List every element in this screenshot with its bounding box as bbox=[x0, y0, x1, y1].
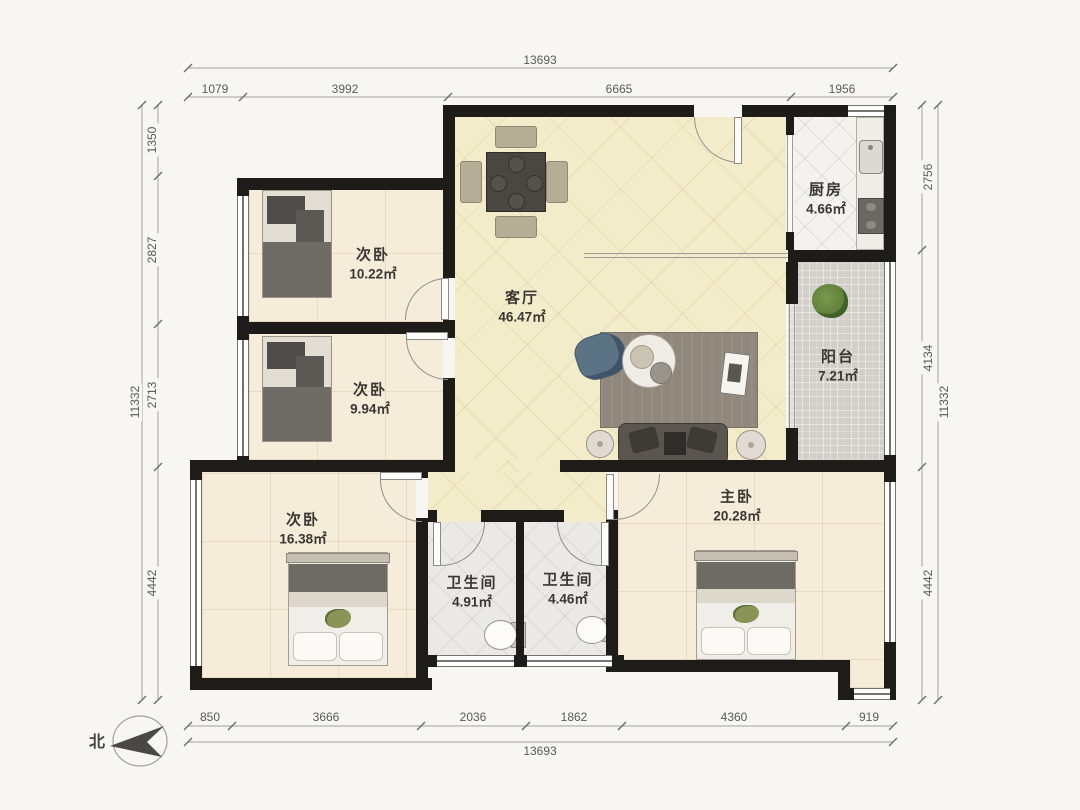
dim-top-seg-0: 1079 bbox=[199, 82, 232, 96]
wall-nook-step bbox=[838, 660, 850, 700]
bedroom2-name: 次卧 bbox=[350, 380, 390, 400]
label-living: 客厅 46.47㎡ bbox=[498, 288, 545, 325]
kitchen-area: 4.66㎡ bbox=[806, 200, 846, 218]
side-table bbox=[736, 430, 766, 460]
dim-right-seg-2: 4442 bbox=[921, 567, 935, 600]
wall-kitchen-living-nub-bottom bbox=[786, 232, 794, 250]
wall-balcony-living-block-top bbox=[786, 262, 798, 304]
entrance-door-leaf bbox=[734, 117, 742, 164]
window-bedroom1 bbox=[237, 196, 249, 316]
wall-living-left-a bbox=[443, 105, 455, 278]
wall-bathrooms-top-a bbox=[428, 510, 437, 522]
wall-living-left-c bbox=[443, 378, 455, 472]
dining-chair bbox=[495, 216, 537, 238]
kitchen-name: 厨房 bbox=[806, 180, 846, 200]
dim-left-seg-0: 1350 bbox=[145, 124, 159, 157]
kitchen-sliding-door bbox=[787, 135, 793, 232]
master-nook-floor bbox=[850, 660, 884, 688]
balcony-name: 阳台 bbox=[818, 347, 858, 367]
label-balcony: 阳台 7.21㎡ bbox=[818, 347, 858, 384]
side-table bbox=[586, 430, 614, 458]
bed-decor bbox=[325, 609, 350, 628]
floor-plan: 次卧 10.22㎡ 次卧 9.94㎡ 客厅 46.47㎡ 厨房 4.66㎡ 阳台… bbox=[0, 0, 1080, 810]
tv-screen bbox=[727, 364, 742, 383]
wall-balcony-living-block-bottom bbox=[786, 428, 798, 472]
compass-icon bbox=[110, 716, 167, 766]
window-master-right bbox=[884, 482, 896, 642]
bed-blanket bbox=[263, 387, 331, 441]
dining-chair bbox=[460, 161, 482, 203]
dim-bottom-seg-5: 919 bbox=[856, 710, 882, 724]
bedroom1-door-leaf bbox=[441, 278, 449, 320]
sofa-tray bbox=[664, 432, 686, 455]
bedroom3-door-leaf bbox=[380, 472, 422, 480]
plate bbox=[630, 345, 654, 369]
wall-kitchen-living-nub-top bbox=[786, 117, 794, 135]
bedroom2-area: 9.94㎡ bbox=[350, 400, 390, 418]
window-kitchen bbox=[848, 105, 884, 117]
bed-blanket bbox=[263, 242, 331, 297]
dining-table bbox=[486, 152, 546, 212]
north-label: 北 bbox=[89, 728, 105, 752]
dim-right-seg-0: 2756 bbox=[921, 161, 935, 194]
sofa-cushion bbox=[686, 426, 719, 454]
bathroom1-door-leaf bbox=[433, 522, 441, 566]
label-bedroom1: 次卧 10.22㎡ bbox=[349, 245, 396, 282]
wall-master-bottom bbox=[618, 660, 845, 672]
bathroom2-name: 卫生间 bbox=[542, 570, 593, 590]
bed-blanket bbox=[697, 562, 795, 589]
dining-chair bbox=[495, 126, 537, 148]
bed-pillow bbox=[296, 356, 325, 387]
dim-left-seg-2: 2713 bbox=[145, 379, 159, 412]
plate bbox=[526, 175, 543, 192]
toilet-bowl bbox=[576, 616, 608, 644]
wall-living-south bbox=[560, 460, 896, 472]
label-kitchen: 厨房 4.66㎡ bbox=[806, 180, 846, 217]
dim-bottom-seg-1: 3666 bbox=[310, 710, 343, 724]
bedroom3-area: 16.38㎡ bbox=[279, 530, 326, 548]
bed-master bbox=[696, 550, 796, 660]
dim-top-seg-3: 1956 bbox=[826, 82, 859, 96]
sofa-cushion bbox=[628, 426, 661, 454]
hallway-opening-floor bbox=[455, 460, 560, 472]
toilet-bowl bbox=[484, 620, 517, 650]
plate bbox=[508, 193, 525, 210]
wall-mid-horizontal bbox=[190, 460, 455, 472]
label-bedroom2: 次卧 9.94㎡ bbox=[350, 380, 390, 417]
bed-bedroom2 bbox=[262, 336, 332, 442]
window-nook bbox=[854, 688, 890, 700]
wall-kitchen-balcony-divider bbox=[788, 250, 896, 262]
wall-bathrooms-divider bbox=[516, 522, 524, 667]
dim-bottom-seg-4: 4360 bbox=[718, 710, 751, 724]
wall-bedroom3-right bbox=[416, 518, 428, 690]
dim-left-total: 11332 bbox=[128, 383, 142, 421]
bed-headboard bbox=[694, 551, 798, 561]
plate bbox=[508, 156, 525, 173]
window-bathroom2 bbox=[527, 655, 612, 667]
dim-left-seg-1: 2827 bbox=[145, 234, 159, 267]
bed-blanket bbox=[289, 564, 387, 592]
bed-sheet bbox=[697, 589, 795, 603]
bed-pillow bbox=[747, 627, 791, 655]
dim-bottom-seg-3: 1862 bbox=[558, 710, 591, 724]
master-door-leaf bbox=[606, 474, 614, 520]
bathroom2-door-leaf bbox=[601, 522, 609, 566]
bed-decor bbox=[733, 605, 758, 623]
bedroom1-area: 10.22㎡ bbox=[349, 265, 396, 283]
bed-pillow bbox=[339, 632, 383, 661]
bed-bedroom3 bbox=[288, 552, 388, 666]
dim-left-seg-3: 4442 bbox=[145, 567, 159, 600]
master-name: 主卧 bbox=[713, 487, 760, 507]
bed-sheet bbox=[289, 592, 387, 607]
window-bedroom3 bbox=[190, 480, 202, 666]
living-area: 46.47㎡ bbox=[498, 308, 545, 326]
label-master: 主卧 20.28㎡ bbox=[713, 487, 760, 524]
sofa bbox=[618, 423, 728, 465]
dim-bottom-seg-2: 2036 bbox=[457, 710, 490, 724]
dim-top-total: 13693 bbox=[520, 53, 559, 67]
window-bathroom1 bbox=[437, 655, 514, 667]
bathroom1-name: 卫生间 bbox=[446, 573, 497, 593]
bed-pillow bbox=[293, 632, 337, 661]
window-balcony-glazing bbox=[884, 262, 896, 455]
kitchen-sink bbox=[859, 140, 883, 174]
dim-bottom-seg-0: 850 bbox=[197, 710, 223, 724]
tv-wall-line bbox=[584, 253, 796, 258]
balcony-area: 7.21㎡ bbox=[818, 367, 858, 385]
dim-right-total: 11332 bbox=[937, 383, 951, 421]
wall-top-left-segment bbox=[443, 105, 694, 117]
label-bathroom2: 卫生间 4.46㎡ bbox=[542, 570, 593, 607]
plate bbox=[490, 175, 507, 192]
tv-unit bbox=[720, 352, 751, 397]
bedroom3-name: 次卧 bbox=[279, 510, 326, 530]
label-bedroom3: 次卧 16.38㎡ bbox=[279, 510, 326, 547]
bedroom1-name: 次卧 bbox=[349, 245, 396, 265]
window-bedroom2 bbox=[237, 340, 249, 456]
bedroom2-door-leaf bbox=[406, 332, 448, 340]
bed-headboard bbox=[286, 553, 390, 563]
bathroom1-area: 4.91㎡ bbox=[446, 593, 497, 611]
dim-right-seg-1: 4134 bbox=[921, 342, 935, 375]
dining-chair bbox=[546, 161, 568, 203]
bed-pillow bbox=[701, 627, 745, 655]
master-area: 20.28㎡ bbox=[713, 507, 760, 525]
wall-bedroom1-top bbox=[237, 178, 455, 190]
bed-pillow bbox=[296, 210, 325, 242]
dim-bottom-total: 13693 bbox=[520, 744, 559, 758]
living-name: 客厅 bbox=[498, 288, 545, 308]
dim-top-seg-2: 6665 bbox=[603, 82, 636, 96]
kitchen-stove bbox=[858, 198, 884, 234]
plate bbox=[650, 362, 672, 384]
coffee-table bbox=[622, 334, 676, 388]
wall-bedroom3-bottom bbox=[190, 678, 432, 690]
bathroom2-area: 4.46㎡ bbox=[542, 590, 593, 608]
wall-bathrooms-top-b bbox=[481, 510, 564, 522]
balcony-sliding-door bbox=[789, 304, 795, 428]
label-bathroom1: 卫生间 4.91㎡ bbox=[446, 573, 497, 610]
potted-plant bbox=[812, 284, 848, 318]
dim-top-seg-1: 3992 bbox=[329, 82, 362, 96]
bed-bedroom1 bbox=[262, 190, 332, 298]
wall-top-right-segment bbox=[742, 105, 848, 117]
